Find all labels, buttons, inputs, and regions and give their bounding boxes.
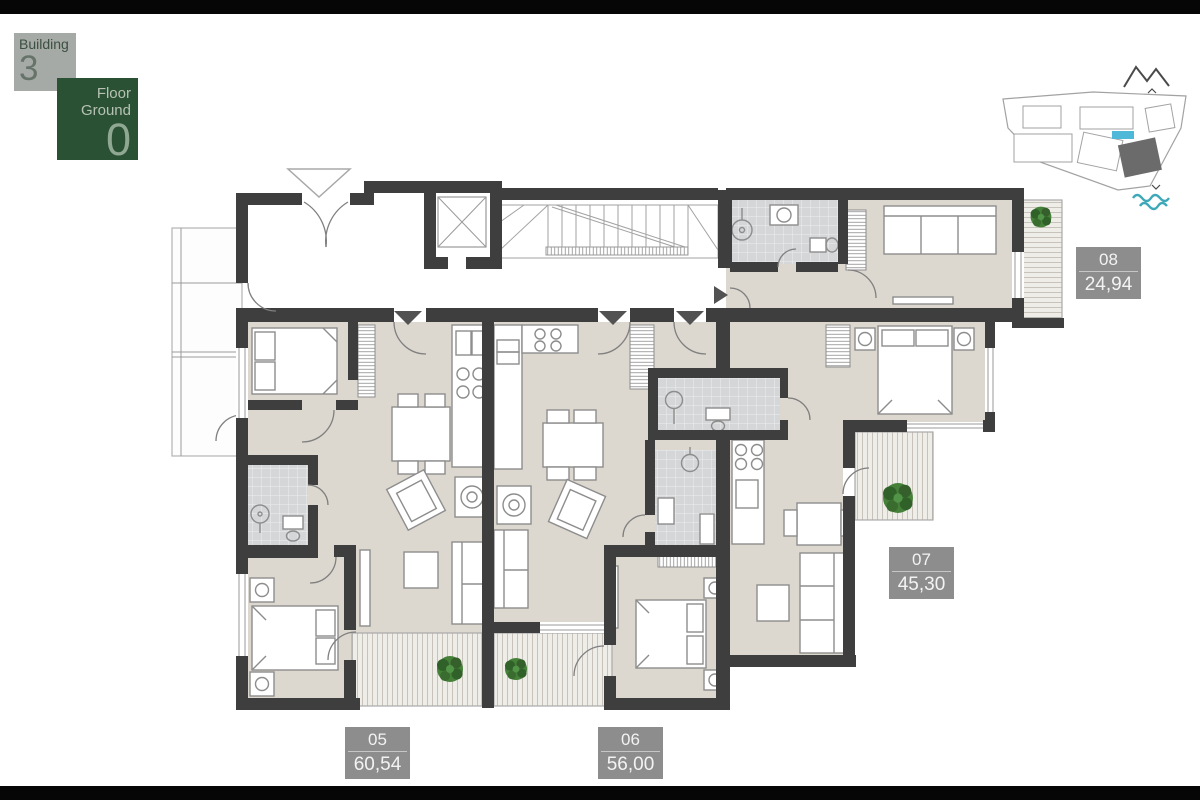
pool-marker — [1112, 131, 1134, 139]
waves-icon — [1140, 203, 1167, 209]
chair — [574, 467, 596, 480]
double-bed — [878, 326, 952, 414]
badge-divider — [348, 751, 407, 752]
bath-cabinet — [700, 514, 714, 544]
chair — [547, 467, 569, 480]
shower-tray — [658, 498, 674, 524]
building-outline — [1014, 134, 1072, 162]
site-map — [1003, 67, 1186, 209]
stairs-icon — [500, 205, 718, 258]
table — [797, 503, 841, 545]
floor-number: 0 — [57, 119, 131, 160]
coffee-table — [757, 585, 789, 621]
dining-table — [392, 407, 450, 461]
apartment-area: 45,30 — [889, 574, 954, 595]
tv-console — [893, 297, 953, 304]
plant-icon — [1031, 207, 1052, 228]
apartment-number: 07 — [889, 550, 954, 569]
apartment-number: 05 — [345, 730, 410, 749]
kitchen-counter — [494, 325, 522, 469]
plant-icon — [505, 658, 527, 680]
badge-divider — [892, 571, 951, 572]
floor-plan — [0, 0, 1200, 800]
bathroom-07-floor — [658, 378, 780, 430]
chair — [425, 394, 445, 407]
apartment-area: 60,54 — [345, 754, 410, 775]
chair — [425, 461, 445, 474]
plant-icon — [437, 656, 463, 682]
floor-label: Floor — [57, 85, 131, 102]
mountains-icon — [1124, 67, 1169, 87]
letterbox-top — [0, 0, 1200, 14]
toilet — [706, 408, 730, 420]
chair — [398, 461, 418, 474]
apartment-entry-marker — [714, 286, 728, 304]
chair — [574, 410, 596, 423]
apartment-badge-06[interactable]: 06 56,00 — [598, 727, 663, 779]
chair — [547, 410, 569, 423]
apartment-area: 24,94 — [1076, 274, 1141, 295]
wardrobe — [358, 325, 375, 397]
building-outline — [1023, 106, 1061, 128]
sofa — [494, 530, 528, 608]
apartment-number: 06 — [598, 730, 663, 749]
elevator-icon — [438, 197, 486, 247]
chair — [398, 394, 418, 407]
apartment-area: 56,00 — [598, 754, 663, 775]
coffee-table — [404, 552, 438, 588]
kitchen-counter — [522, 325, 578, 353]
dining-table — [543, 423, 603, 467]
tv-console — [360, 550, 370, 626]
building-outline — [1145, 104, 1175, 132]
apartment-badge-08[interactable]: 08 24,94 — [1076, 247, 1141, 299]
wardrobe — [846, 210, 866, 270]
chair — [784, 510, 797, 536]
double-bed — [252, 328, 337, 394]
toilet — [810, 238, 826, 252]
wardrobe — [826, 325, 850, 367]
washing-machine — [497, 486, 531, 524]
north-arrow-icon — [1148, 89, 1156, 93]
badge-divider — [1079, 271, 1138, 272]
floorplan-viewer: Building 3 Floor Ground 0 08 24,94 07 45… — [0, 0, 1200, 800]
waves-icon — [1133, 195, 1169, 201]
side-terrace — [172, 228, 242, 456]
nightstand — [250, 578, 274, 602]
plant-icon — [883, 483, 913, 513]
nightstand — [250, 672, 274, 696]
building-outline — [1080, 107, 1133, 129]
entrance-marker-icon — [288, 169, 350, 197]
sofa-bed — [884, 206, 996, 254]
sea-arrow-icon — [1152, 185, 1160, 189]
apartment-badge-07[interactable]: 07 45,30 — [889, 547, 954, 599]
apartment-badge-05[interactable]: 05 60,54 — [345, 727, 410, 779]
badge-divider — [601, 751, 660, 752]
floor-badge[interactable]: Floor Ground 0 — [57, 78, 138, 160]
letterbox-bottom — [0, 786, 1200, 800]
sofa — [800, 553, 846, 653]
toilet — [283, 516, 303, 529]
apartment-number: 08 — [1076, 250, 1141, 269]
